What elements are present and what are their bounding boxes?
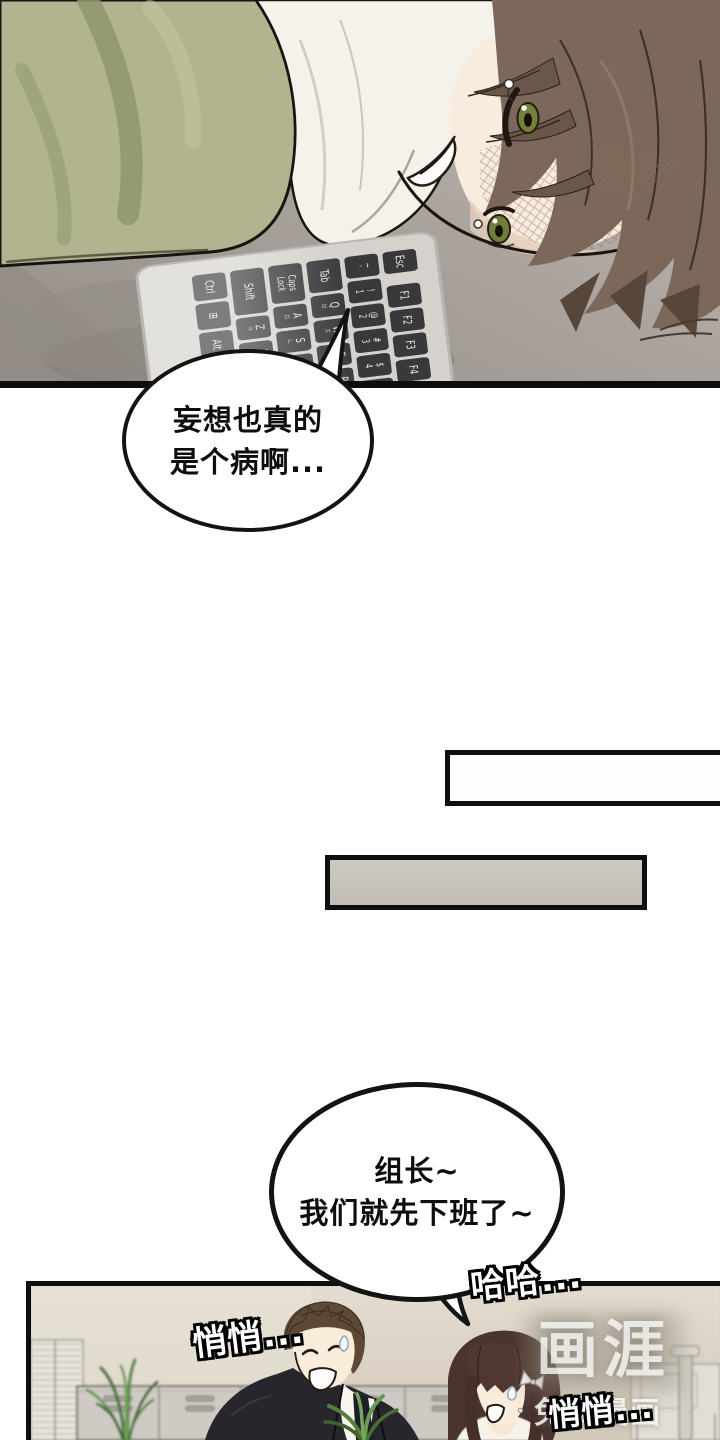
keyboard-key: F3 <box>392 332 428 358</box>
bubble-text-line: 妄想也真的 <box>173 399 323 441</box>
keyboard-key: F4 <box>395 357 431 383</box>
keyboard-key: Shift <box>230 267 269 316</box>
caption-box-empty-1 <box>445 750 720 806</box>
keyboard-key: ~ ` <box>344 253 380 279</box>
speech-bubble-1: 妄想也真的 是个病啊... <box>122 349 374 532</box>
keyboard-key: Tab <box>306 258 343 294</box>
window-blinds <box>31 1340 83 1440</box>
sfx-whisper-2: 悄悄... <box>546 1381 655 1436</box>
green-cushion <box>0 0 295 266</box>
comic-page: Esc F1F2F3F4F5 ~ ` ! 1@ 2# 3$ 4% 5^ 6 Ta… <box>0 0 720 1440</box>
keyboard-key: F1 <box>386 282 422 308</box>
sweat-drop <box>340 1336 348 1351</box>
keyboard-key: Zㅋ <box>235 315 271 341</box>
bubble-text-line: 我们就先下班了~ <box>299 1192 534 1234</box>
keyboard-key: Ctrl <box>192 272 229 302</box>
earphone-icon <box>474 220 482 228</box>
bubble-text-line: 是个病啊... <box>170 441 326 483</box>
keyboard-key: ! 1 <box>347 278 383 304</box>
caption-box-empty-2 <box>325 855 647 910</box>
keyboard-key: F5 <box>398 382 434 388</box>
keyboard-key: ⊞ <box>195 301 232 331</box>
sweat-drop <box>508 1387 516 1400</box>
keyboard-key: F2 <box>389 307 425 333</box>
keyboard-key: Esc <box>382 249 418 275</box>
bubble-text-line: 组长~ <box>374 1150 459 1192</box>
watermark-logo: 画涯 <box>536 1316 670 1384</box>
keyboard-key: Caps Lock <box>268 263 306 305</box>
earphone-icon <box>505 80 514 89</box>
